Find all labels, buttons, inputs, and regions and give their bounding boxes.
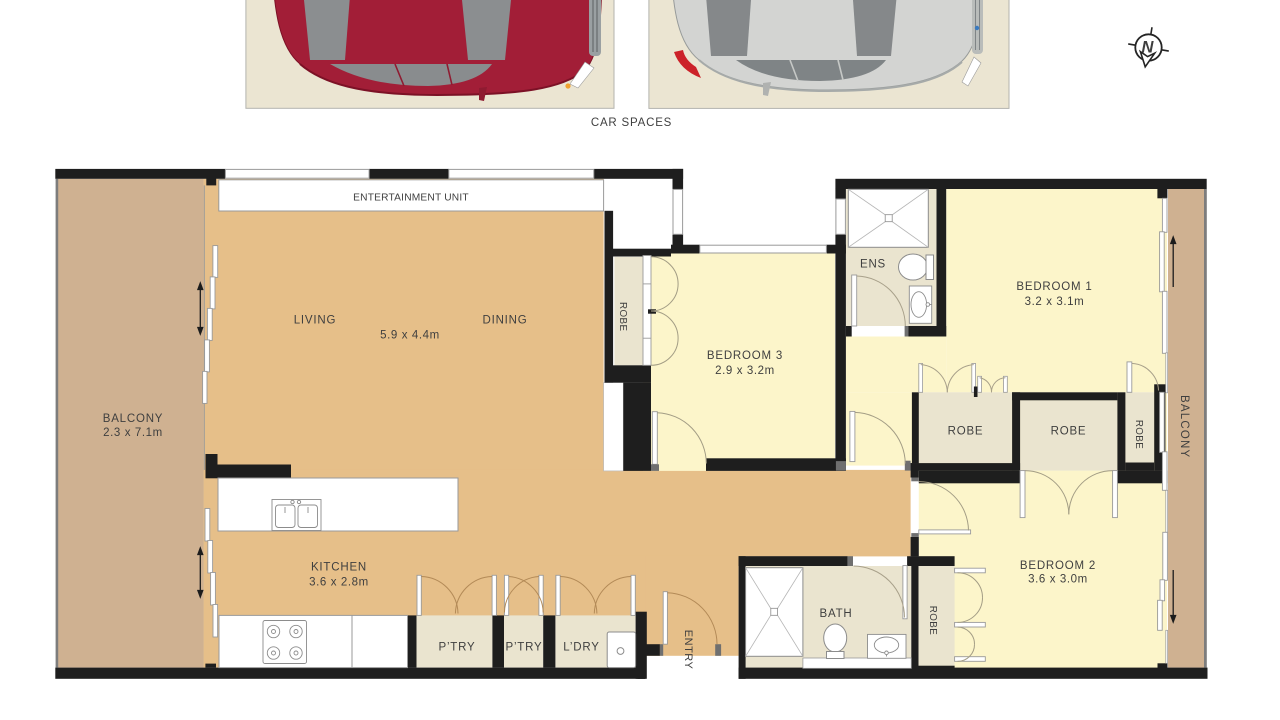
svg-text:ROBE: ROBE: [927, 606, 938, 635]
svg-text:ROBE: ROBE: [617, 302, 628, 331]
svg-text:L’DRY: L’DRY: [563, 642, 599, 654]
svg-text:BEDROOM 1: BEDROOM 1: [1016, 281, 1092, 293]
svg-text:ROBE: ROBE: [948, 426, 984, 438]
svg-text:ENS: ENS: [860, 259, 886, 271]
svg-text:2.3 x 7.1m: 2.3 x 7.1m: [103, 427, 163, 439]
svg-text:5.9 x 4.4m: 5.9 x 4.4m: [380, 330, 440, 342]
svg-text:2.9 x 3.2m: 2.9 x 3.2m: [715, 365, 775, 377]
svg-text:ENTERTAINMENT UNIT: ENTERTAINMENT UNIT: [353, 193, 469, 204]
svg-text:DINING: DINING: [482, 315, 527, 327]
svg-text:ROBE: ROBE: [1133, 420, 1144, 449]
svg-text:LIVING: LIVING: [294, 315, 337, 327]
svg-text:BATH: BATH: [819, 608, 852, 620]
svg-text:ENTRY: ENTRY: [682, 630, 694, 670]
svg-text:ROBE: ROBE: [1051, 426, 1087, 438]
svg-text:BALCONY: BALCONY: [1178, 395, 1190, 458]
svg-text:BEDROOM 3: BEDROOM 3: [707, 350, 783, 362]
svg-text:3.6 x 3.0m: 3.6 x 3.0m: [1028, 574, 1088, 586]
svg-text:BEDROOM 2: BEDROOM 2: [1020, 560, 1096, 572]
svg-text:KITCHEN: KITCHEN: [311, 562, 367, 574]
svg-text:P’TRY: P’TRY: [438, 642, 475, 654]
svg-text:P’TRY: P’TRY: [505, 642, 542, 654]
svg-text:BALCONY: BALCONY: [103, 413, 164, 425]
svg-text:CAR SPACES: CAR SPACES: [591, 117, 672, 129]
svg-text:3.2 x 3.1m: 3.2 x 3.1m: [1025, 296, 1085, 308]
svg-text:3.6 x 2.8m: 3.6 x 2.8m: [309, 577, 369, 589]
